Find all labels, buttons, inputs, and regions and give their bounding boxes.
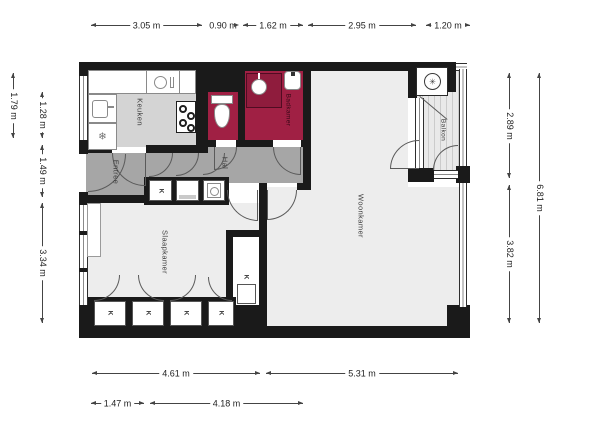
balkon-utility-closet: ✳ <box>416 67 448 96</box>
bedroom-closet-k-2: K <box>145 311 152 316</box>
label-keuken: Keuken <box>136 98 145 126</box>
closet-k-label: K <box>158 189 165 194</box>
label-balkon: Balkon <box>440 119 447 141</box>
wall-toilet-badkamer <box>238 92 245 147</box>
dim-right-outer-1: 6.81 m <box>539 73 540 323</box>
label-slaapkamer: Slaapkamer <box>161 230 170 274</box>
label-woonkamer: Woonkamer <box>357 194 366 238</box>
shower-drain <box>251 79 267 95</box>
bedroom-closet-k-3: K <box>183 311 190 316</box>
bedroom-closet-k-1: K <box>107 311 114 316</box>
dim-top-1: 3.05 m <box>91 25 202 26</box>
woonkamer-door-leaf <box>267 190 268 220</box>
ventilation-unit-icon: ✳ <box>424 73 441 90</box>
dim-top-4: 2.95 m <box>308 25 416 26</box>
wall-balkon-partition-bottom <box>408 168 434 182</box>
shaft-closet-k-label: K <box>243 275 250 280</box>
fridge: ❄ <box>88 123 117 150</box>
burner-4 <box>187 124 195 132</box>
window-balkon-right <box>459 69 467 170</box>
dim-bottom-main-2: 5.31 m <box>266 373 458 374</box>
stove <box>176 101 196 133</box>
label-entree: Entree <box>112 160 121 185</box>
balkon-door-leaf <box>390 168 419 169</box>
badkamer-door-leaf <box>300 147 301 175</box>
faucet-icon <box>108 106 114 108</box>
dim-right-inner-2: 3.82 m <box>509 185 510 323</box>
washing-machine-drum <box>210 187 219 196</box>
wall-balkon-closet-side <box>448 62 456 92</box>
window-balkon-bottom <box>434 170 458 179</box>
washing-machine-icon <box>207 183 221 198</box>
dim-top-5: 1.20 m <box>426 25 470 26</box>
shower-tray <box>246 73 282 108</box>
wall-badkamer-right <box>303 62 311 187</box>
dim-top-2: 0.90 m <box>207 25 239 26</box>
label-badkamer: Badkamer <box>285 94 292 127</box>
dim-top-3: 1.62 m <box>243 25 303 26</box>
shaft-fixture <box>237 284 256 304</box>
slaapkamer-door-leaf <box>257 190 258 221</box>
wall-hal-bottom-mid <box>259 183 267 190</box>
burner-1 <box>179 105 187 113</box>
room-woonkamer-floor-lower <box>267 307 447 326</box>
shower-head <box>258 73 260 79</box>
burner-2 <box>187 112 195 120</box>
fan-glyph: ✳ <box>429 77 436 86</box>
window-mullion-2 <box>79 268 87 272</box>
dim-left-inner-3: 3.34 m <box>42 203 43 323</box>
burner-3 <box>179 119 187 127</box>
window-woonkamer <box>459 183 467 307</box>
dim-left-outer-1: 1.79 m <box>13 73 14 138</box>
wall-slaapkamer-top <box>79 195 147 203</box>
dim-left-inner-1: 1.28 m <box>42 92 43 138</box>
wall-balkon-corner <box>456 166 470 183</box>
toilet-tank <box>211 95 233 104</box>
snowflake-icon: ❄ <box>98 131 106 142</box>
dim-right-inner-1: 2.89 m <box>509 73 510 178</box>
wall-corner-right-bottom <box>447 305 470 338</box>
wall-toilet-top <box>196 62 245 92</box>
label-hal: Hal <box>221 157 230 169</box>
dishwasher <box>146 70 180 94</box>
keuken-door-leaf <box>145 153 146 186</box>
sink-bowl <box>92 100 108 118</box>
closet-shelf-mark <box>179 195 196 199</box>
wall-badkamer-bottom-right <box>301 140 311 147</box>
washbasin <box>284 71 301 90</box>
wall-hal-bottom-right <box>297 183 311 190</box>
window-keuken <box>79 76 88 140</box>
dishwasher-glass-icon <box>170 77 174 88</box>
kitchen-sink <box>88 94 117 123</box>
room-woonkamer-floor-upper <box>311 70 408 187</box>
toilet-door-leaf <box>214 147 215 170</box>
floorplan-canvas: ✳ K K K K K K <box>0 0 600 425</box>
washbasin-tap <box>291 72 295 76</box>
wall-toilet-bottom-right <box>236 140 245 147</box>
wall-keuken-entree-right <box>146 145 208 153</box>
bedroom-wardrobe <box>87 203 101 257</box>
bedroom-closet-k-4: K <box>218 311 225 316</box>
wall-toilet-bottom-left <box>208 140 216 147</box>
dim-bottom-main-1: 4.61 m <box>92 373 260 374</box>
dim-bottom-sub-2: 4.18 m <box>150 403 303 404</box>
window-mullion-1 <box>79 231 87 235</box>
dim-bottom-sub-1: 1.47 m <box>91 403 144 404</box>
dishwasher-plate-icon <box>154 76 167 89</box>
wall-badkamer-bottom-left <box>245 140 273 147</box>
dim-left-inner-2: 1.49 m <box>42 145 43 197</box>
wall-corner-left-top <box>79 62 88 76</box>
shaft-closet-top <box>226 230 267 237</box>
